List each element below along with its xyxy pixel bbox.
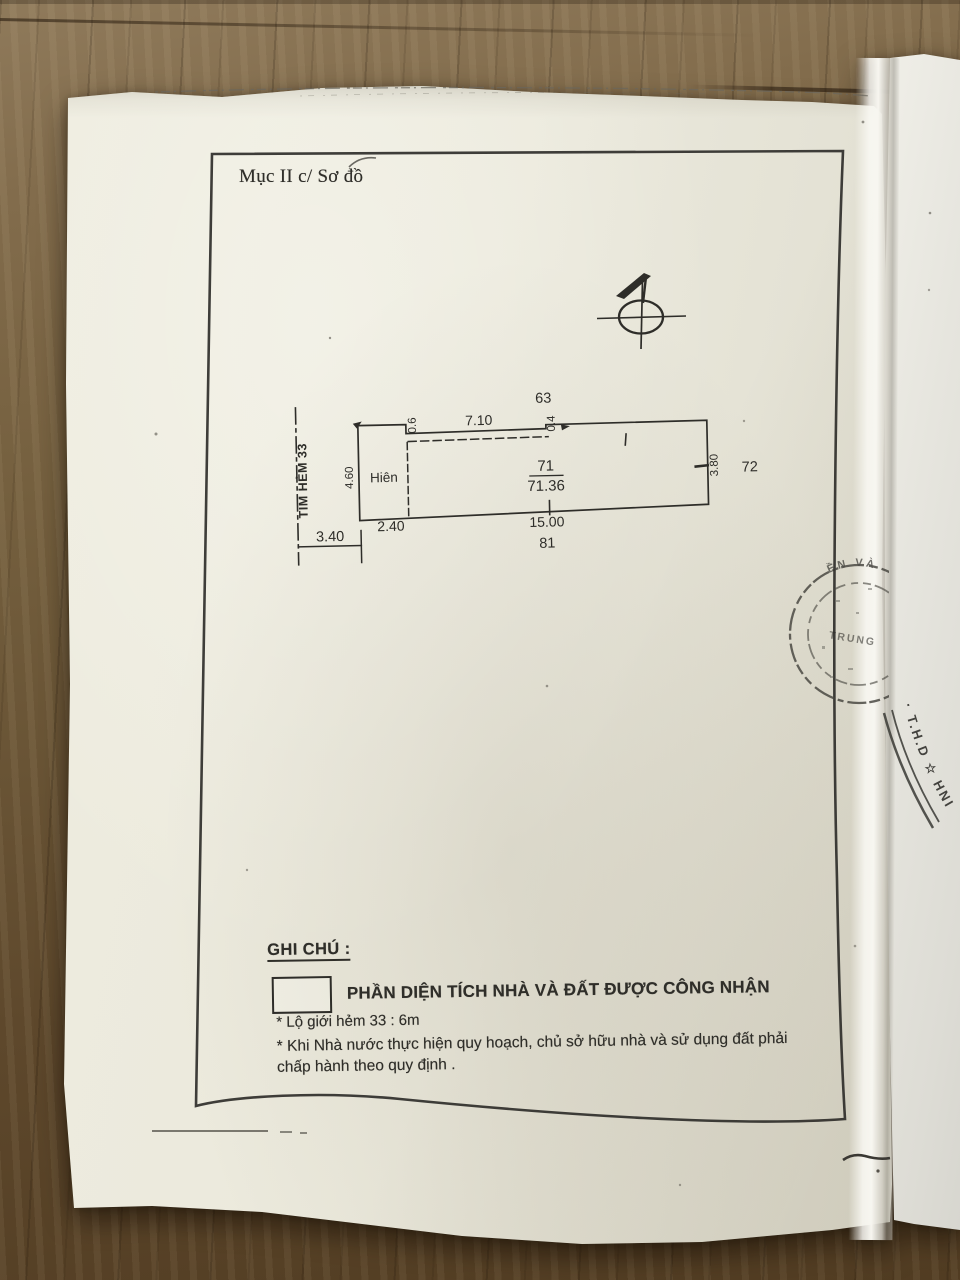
legend-note-road-width: * Lộ giới hẻm 33 : 6m bbox=[276, 1012, 419, 1031]
legend-heading-text: GHI CHÚ : bbox=[267, 940, 351, 962]
legend-note-planning-line1: * Khi Nhà nước thực hiện quy hoạch, chủ … bbox=[277, 1030, 788, 1056]
legend-swatch-caption: PHẦN DIỆN TÍCH NHÀ VÀ ĐẤT ĐƯỢC CÔNG NHẬN bbox=[347, 977, 770, 1004]
legend-note-planning-line2: chấp hành theo quy định . bbox=[277, 1056, 456, 1077]
legend-swatch bbox=[272, 976, 333, 1014]
legend-section: GHI CHÚ : PHẦN DIỆN TÍCH NHÀ VÀ ĐẤT ĐƯỢC… bbox=[0, 0, 960, 1280]
legend-heading: GHI CHÚ : bbox=[267, 940, 351, 960]
